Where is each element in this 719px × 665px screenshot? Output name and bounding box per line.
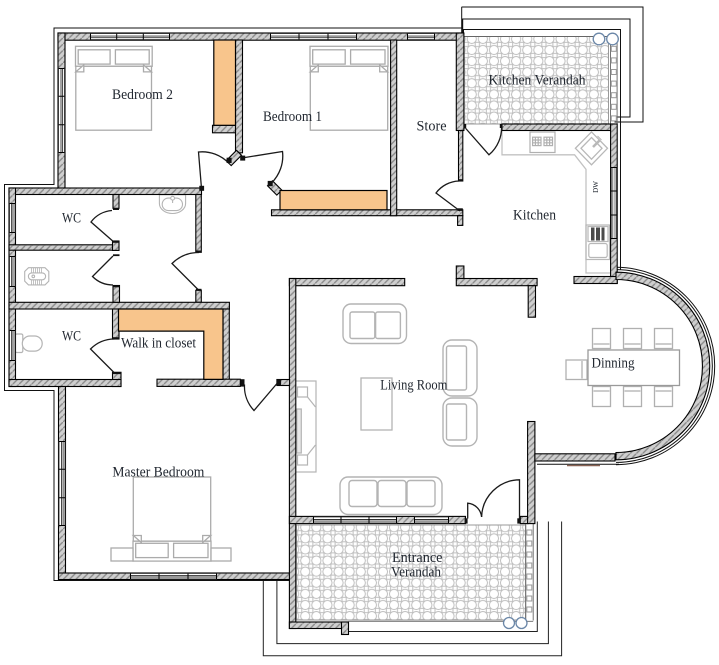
svg-text:Bedroom 1: Bedroom 1	[263, 109, 322, 125]
svg-text:WC: WC	[62, 210, 81, 226]
svg-text:Kitchen: Kitchen	[513, 208, 557, 224]
svg-text:Walk in closet: Walk in closet	[121, 336, 196, 352]
svg-text:Dinning: Dinning	[592, 355, 635, 371]
svg-text:Master Bedroom: Master Bedroom	[112, 465, 205, 481]
svg-text:Store: Store	[417, 119, 447, 135]
svg-text:Bedroom 2: Bedroom 2	[112, 87, 173, 103]
svg-text:Living Room: Living Room	[380, 378, 448, 394]
svg-text:Kitchen Verandah: Kitchen Verandah	[489, 73, 587, 89]
svg-text:Verandah: Verandah	[391, 565, 442, 581]
svg-text:DW: DW	[592, 181, 600, 193]
svg-text:WC: WC	[62, 328, 81, 344]
